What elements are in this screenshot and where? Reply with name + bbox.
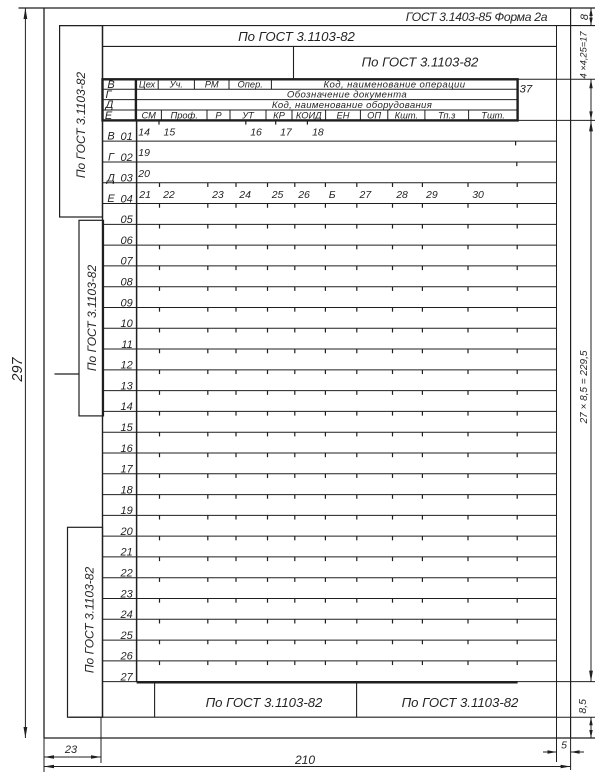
svg-text:16: 16 — [250, 126, 262, 138]
svg-text:18: 18 — [121, 484, 134, 496]
svg-text:РМ: РМ — [205, 79, 219, 89]
svg-text:Обозначение документа: Обозначение документа — [287, 90, 407, 101]
svg-text:Цех: Цех — [139, 79, 156, 89]
svg-text:14: 14 — [121, 401, 133, 413]
svg-text:29: 29 — [425, 189, 438, 201]
svg-text:ЕН: ЕН — [337, 110, 350, 120]
svg-text:01: 01 — [121, 131, 133, 143]
svg-text:СМ: СМ — [141, 110, 156, 120]
svg-text:8: 8 — [579, 13, 591, 20]
svg-text:210: 210 — [294, 753, 315, 767]
svg-text:13: 13 — [121, 380, 134, 392]
svg-text:Опер.: Опер. — [238, 79, 263, 89]
svg-text:Проф.: Проф. — [170, 110, 197, 120]
svg-text:ГОСТ 3.1403-85 Форма 2а: ГОСТ 3.1403-85 Форма 2а — [406, 10, 548, 24]
svg-text:КОИД: КОИД — [296, 110, 322, 120]
svg-text:22: 22 — [120, 568, 133, 580]
svg-text:8,5: 8,5 — [577, 699, 589, 714]
svg-text:Тшт.: Тшт. — [481, 110, 505, 120]
svg-text:Код, наименование оборудован: Код, наименование оборудования — [272, 100, 432, 111]
svg-text:26: 26 — [120, 651, 134, 663]
svg-text:По ГОСТ 3.1103-82: По ГОСТ 3.1103-82 — [83, 567, 97, 674]
svg-text:07: 07 — [121, 256, 134, 268]
svg-text:27 × 8,5 = 229,5: 27 × 8,5 = 229,5 — [579, 350, 590, 424]
svg-text:15: 15 — [164, 126, 176, 138]
svg-text:Б: Б — [329, 189, 336, 201]
svg-text:16: 16 — [121, 443, 134, 455]
svg-text:Уч.: Уч. — [169, 79, 183, 89]
svg-text:24: 24 — [238, 189, 251, 201]
svg-text:УТ: УТ — [241, 110, 255, 120]
svg-text:Е: Е — [107, 193, 115, 205]
svg-text:5: 5 — [561, 740, 567, 752]
svg-text:По ГОСТ 3.1103-82: По ГОСТ 3.1103-82 — [402, 695, 519, 710]
svg-text:27: 27 — [120, 671, 134, 683]
svg-text:В: В — [107, 131, 114, 143]
svg-text:23: 23 — [64, 744, 78, 756]
svg-text:30: 30 — [472, 189, 484, 201]
svg-text:21: 21 — [120, 547, 133, 559]
svg-text:21: 21 — [138, 189, 151, 201]
svg-text:17: 17 — [121, 464, 134, 476]
svg-text:17: 17 — [280, 126, 293, 138]
svg-text:37: 37 — [520, 83, 533, 95]
svg-text:По ГОСТ 3.1103-82: По ГОСТ 3.1103-82 — [362, 55, 479, 70]
svg-text:27: 27 — [359, 189, 373, 201]
svg-text:19: 19 — [121, 505, 133, 517]
svg-text:По ГОСТ 3.1103-82: По ГОСТ 3.1103-82 — [74, 72, 88, 179]
svg-text:Г: Г — [108, 151, 115, 163]
svg-text:20: 20 — [137, 168, 150, 180]
svg-text:Тп.з: Тп.з — [438, 110, 456, 120]
svg-text:КР: КР — [273, 110, 285, 120]
svg-text:По ГОСТ 3.1103-82: По ГОСТ 3.1103-82 — [206, 695, 323, 710]
svg-text:23: 23 — [120, 588, 134, 600]
svg-text:По ГОСТ 3.1103-82: По ГОСТ 3.1103-82 — [238, 29, 355, 44]
svg-text:19: 19 — [138, 147, 150, 159]
svg-text:ОП: ОП — [367, 110, 381, 120]
svg-text:04: 04 — [121, 193, 133, 205]
svg-text:09: 09 — [121, 297, 133, 309]
svg-text:10: 10 — [121, 318, 134, 330]
svg-text:Р: Р — [215, 110, 222, 120]
svg-text:14: 14 — [138, 126, 150, 138]
svg-text:25: 25 — [120, 630, 134, 642]
svg-text:03: 03 — [121, 173, 134, 185]
svg-text:18: 18 — [312, 126, 324, 138]
svg-text:4 ×4,25=17: 4 ×4,25=17 — [579, 31, 589, 79]
svg-text:20: 20 — [120, 526, 134, 538]
svg-text:15: 15 — [121, 422, 134, 434]
svg-text:22: 22 — [162, 189, 175, 201]
svg-text:Кшт.: Кшт. — [395, 110, 418, 120]
svg-text:02: 02 — [121, 152, 133, 164]
svg-text:26: 26 — [297, 189, 310, 201]
svg-text:12: 12 — [121, 360, 133, 372]
svg-text:23: 23 — [211, 189, 224, 201]
svg-text:08: 08 — [121, 276, 134, 288]
svg-text:24: 24 — [120, 609, 133, 621]
svg-text:297: 297 — [10, 356, 26, 382]
svg-text:05: 05 — [121, 214, 134, 226]
svg-text:11: 11 — [121, 339, 132, 351]
svg-text:28: 28 — [395, 189, 408, 201]
svg-text:Д: Д — [105, 172, 115, 184]
svg-text:06: 06 — [121, 235, 134, 247]
svg-text:25: 25 — [271, 189, 284, 201]
svg-text:По ГОСТ 3.1103-82: По ГОСТ 3.1103-82 — [85, 265, 99, 372]
